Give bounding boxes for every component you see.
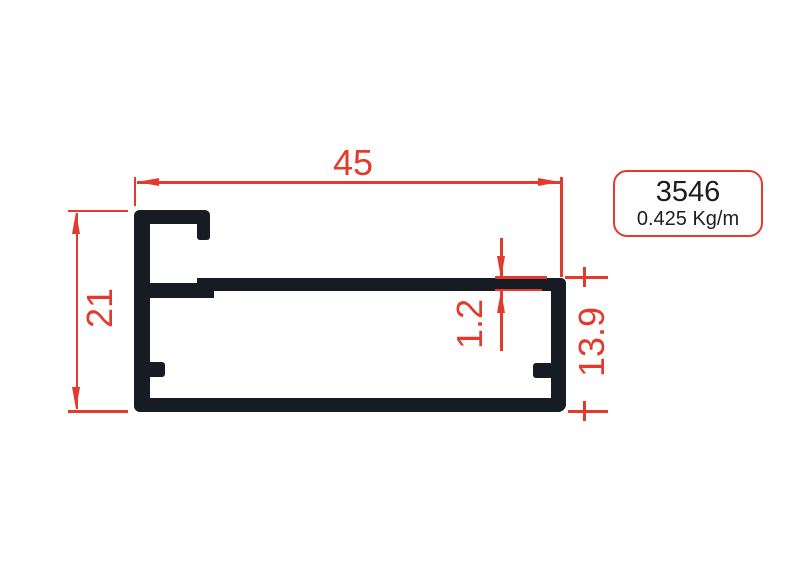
dimension-line — [76, 213, 79, 409]
dimension-width-value: 45 — [333, 145, 373, 181]
arrowhead-right-icon — [538, 178, 560, 186]
extension-line-right — [560, 177, 563, 277]
arrowhead-down-icon — [497, 256, 505, 278]
extension-line-bottom — [568, 410, 608, 413]
arrowhead-left-icon — [137, 178, 159, 186]
profile-left-tab — [150, 362, 165, 377]
dimension-line-lower — [583, 401, 586, 421]
profile-bottom-wall — [134, 398, 566, 412]
arrowhead-up-icon — [497, 291, 505, 313]
extension-line-top — [565, 276, 608, 279]
dimension-side-value: 13.9 — [574, 307, 610, 377]
extension-line-bottom — [68, 410, 128, 413]
profile-right-wall — [551, 278, 566, 412]
profile-left-wall — [134, 210, 150, 412]
profile-top-channel-lip — [197, 224, 210, 240]
extension-line-left — [134, 177, 137, 206]
profile-number: 3546 — [656, 177, 721, 207]
arrowhead-down-icon — [72, 387, 80, 409]
dimension-line — [137, 181, 560, 184]
profile-right-tab — [533, 363, 551, 378]
profile-label-box: 3546 0.425 Kg/m — [613, 170, 763, 237]
arrowhead-up-icon — [72, 212, 80, 234]
profile-weight: 0.425 Kg/m — [637, 208, 739, 230]
dimension-thickness-value: 1.2 — [452, 299, 488, 349]
drawing-canvas: 45 21 1.2 13.9 3546 0.425 Kg/m — [0, 0, 788, 584]
dimension-line-upper — [583, 267, 586, 287]
dimension-height-value: 21 — [82, 288, 118, 328]
profile-top-channel-bar — [134, 210, 210, 224]
